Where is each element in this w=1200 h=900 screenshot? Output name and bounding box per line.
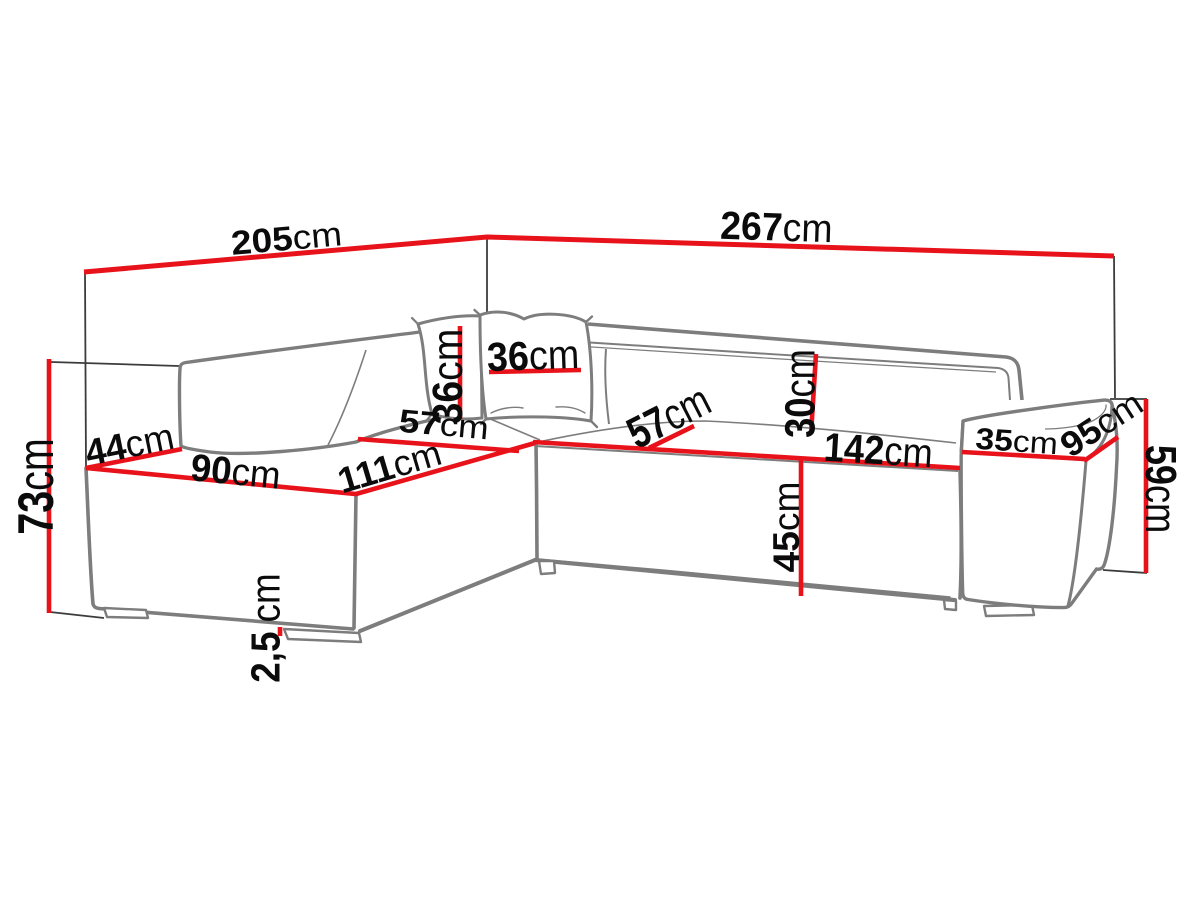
svg-text:45cm: 45cm <box>765 481 807 572</box>
svg-text:59cm: 59cm <box>1136 445 1184 533</box>
svg-text:36cm: 36cm <box>486 332 580 381</box>
svg-text:267cm: 267cm <box>720 204 834 252</box>
svg-text:30cm: 30cm <box>777 349 824 438</box>
svg-text:142cm: 142cm <box>823 425 935 477</box>
svg-text:73cm: 73cm <box>8 438 65 534</box>
svg-text:35cm: 35cm <box>974 421 1059 461</box>
svg-text:90cm: 90cm <box>189 446 283 497</box>
svg-text:36cm: 36cm <box>423 329 471 425</box>
